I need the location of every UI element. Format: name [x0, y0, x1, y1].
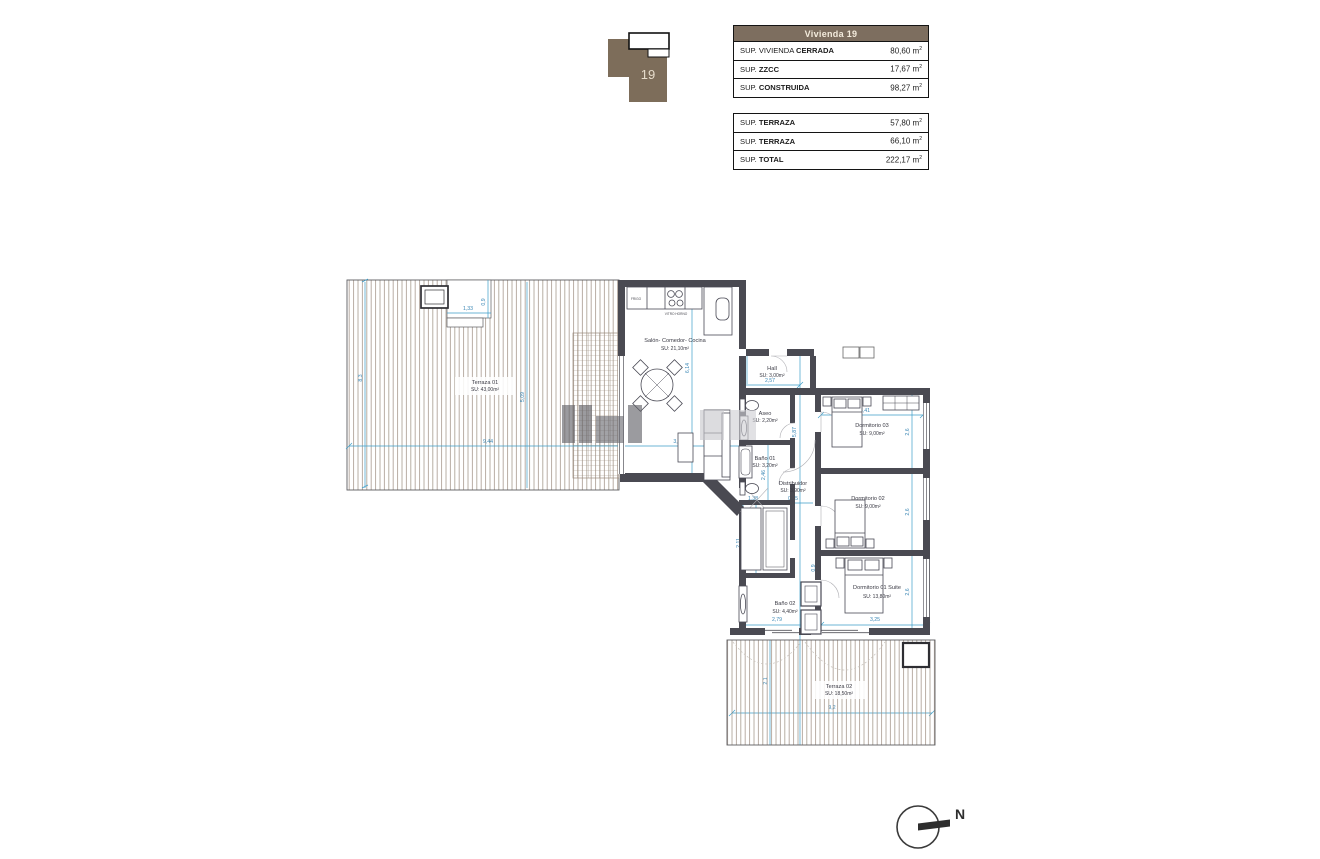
- key-plan-shape: 19: [608, 33, 669, 102]
- key-plan-block-left: [608, 39, 631, 77]
- dim-text: 2,6: [905, 508, 911, 515]
- wall: [787, 349, 814, 356]
- table-row: SUP. ZZCC 17,67 m2: [734, 60, 928, 79]
- watermark-blocks: [562, 405, 756, 443]
- table-row: SUP. TERRAZA 66,10 m2: [734, 132, 928, 151]
- kitchen-label-fridge: FRIGO: [631, 297, 642, 301]
- row-label: SUP. TERRAZA: [740, 118, 795, 127]
- closet: [741, 508, 761, 570]
- terrace-01-notch-step: [447, 318, 483, 327]
- room-label-dorm02-area: SU: 9,00m²: [855, 504, 881, 510]
- wall: [739, 500, 795, 505]
- chair: [667, 360, 683, 376]
- pillow: [851, 537, 863, 546]
- row-value: 66,10 m2: [890, 136, 922, 146]
- hob-burner-icon: [669, 300, 675, 306]
- nightstand: [823, 397, 831, 406]
- kitchen-label-hob: VITRO HORNO: [665, 312, 688, 316]
- nightstand: [836, 558, 844, 568]
- room-label-salon-name: Salón- Comedor- Cocina: [644, 338, 706, 344]
- pillow: [837, 537, 849, 546]
- wall: [746, 349, 769, 356]
- row-value: 80,60 m2: [890, 46, 922, 56]
- floorplan-sheet: 19 Vivienda 19 SUP. VIVIENDA CERRADA 80,…: [0, 0, 1320, 859]
- wall: [821, 550, 930, 556]
- step: [860, 347, 874, 358]
- shower-inner: [805, 586, 817, 602]
- room-label-salon-area: SU: 21,10m²: [661, 346, 689, 352]
- table-row: SUP. CONSTRUIDA 98,27 m2: [734, 78, 928, 97]
- room-label-terraza01-area: SU: 43,00m²: [471, 387, 499, 393]
- table-row: SUP. TERRAZA 57,80 m2: [734, 114, 928, 132]
- room-label-hall-area: SU: 3,00m²: [759, 373, 785, 379]
- wall: [739, 573, 795, 578]
- room-label-dorm03-name: Dormitorio 03: [855, 423, 889, 429]
- dim-text: 1,33: [463, 306, 473, 312]
- wall: [790, 445, 795, 468]
- terrace-01: Terraza 01 SU: 43,00m²: [347, 280, 619, 490]
- wall: [790, 505, 795, 540]
- north-label: N: [955, 806, 965, 822]
- wall: [790, 395, 795, 423]
- wall: [810, 356, 816, 388]
- row-value: 222,17 m2: [886, 155, 922, 165]
- dim-text: 0,9: [481, 298, 487, 305]
- watermark: [558, 402, 768, 448]
- wall: [739, 388, 930, 395]
- nightstand: [866, 539, 874, 548]
- north-arrow-pointer: [918, 820, 950, 831]
- key-plan-highlight-box: [629, 33, 669, 49]
- row-value: 57,80 m2: [890, 118, 922, 128]
- pillow: [834, 399, 846, 408]
- room-label-dorm03-area: SU: 9,00m²: [859, 431, 885, 437]
- dim-text: 8,3: [358, 374, 364, 381]
- room-label-bano01-area: SU: 3,20m²: [752, 463, 778, 469]
- laundry-fixture: [716, 298, 729, 320]
- room-label-terraza02-name: Terraza 02: [826, 684, 852, 690]
- row-label: SUP. VIVIENDA CERRADA: [740, 46, 834, 55]
- summary-table-built: Vivienda 19 SUP. VIVIENDA CERRADA 80,60 …: [733, 25, 929, 98]
- sink-icon: [668, 291, 675, 298]
- nightstand: [826, 539, 834, 548]
- room-label-terraza01-name: Terraza 01: [472, 380, 498, 386]
- dim-text: 2,6: [905, 428, 911, 435]
- row-label: SUP. TERRAZA: [740, 137, 795, 146]
- dim-text: 3,25: [870, 617, 880, 623]
- pillow: [848, 560, 862, 570]
- wall: [815, 526, 821, 580]
- dim-text: 2,79: [772, 617, 782, 623]
- toilet-icon: [746, 484, 759, 494]
- nightstand: [863, 397, 871, 406]
- dim-text: 5,87: [792, 427, 798, 437]
- nightstand: [884, 558, 892, 568]
- summary-table-terraces: SUP. TERRAZA 57,80 m2 SUP. TERRAZA 66,10…: [733, 113, 929, 170]
- room-label-distribuidor-name: Distribuidor: [779, 481, 807, 487]
- dim-text: 6,14: [685, 363, 691, 373]
- wall: [790, 558, 795, 578]
- room-label-dorm01-name: Dormitorio 01 Suite: [853, 585, 901, 591]
- wall: [790, 438, 795, 445]
- room-label-hall-name: Hall: [767, 366, 777, 372]
- dim-text: 5,09: [520, 392, 526, 402]
- kitchen: FRIGO VITRO HORNO: [627, 287, 732, 335]
- terrace-02: Terraza 02 SU: 18,50m²: [727, 640, 935, 745]
- toilet-tank: [740, 482, 745, 495]
- sink-icon: [676, 291, 683, 298]
- room-label-bano02-area: SU: 4,40m²: [772, 609, 798, 615]
- wall: [618, 280, 625, 356]
- key-plan-unit-number: 19: [641, 67, 655, 82]
- planter-box: [903, 643, 929, 667]
- table-row: SUP. TOTAL 222,17 m2: [734, 150, 928, 169]
- bathtub-inner: [741, 449, 750, 475]
- dim-text: 2,6: [905, 588, 911, 595]
- room-label-dorm01-area: SU: 13,80m²: [863, 594, 891, 600]
- row-label: SUP. CONSTRUIDA: [740, 83, 809, 92]
- sliding-door-terrace2-left: [765, 628, 799, 635]
- row-label: SUP. TOTAL: [740, 155, 783, 164]
- table-row: SUP. VIVIENDA CERRADA 80,60 m2: [734, 42, 928, 60]
- room-label-dorm02-name: Dormitorio 02: [851, 496, 885, 502]
- dim-text: 2,46: [761, 470, 767, 480]
- table-header: Vivienda 19: [734, 26, 928, 42]
- wall: [815, 395, 821, 412]
- floor-plan-drawing: Terraza 01 SU: 43,00m²: [335, 260, 955, 760]
- key-plan-highlight-box-small: [648, 49, 669, 57]
- closet-inner: [766, 511, 784, 567]
- step: [843, 347, 859, 358]
- north-arrow: N: [888, 795, 973, 857]
- wall: [620, 473, 710, 482]
- pillow: [848, 399, 860, 408]
- wall: [821, 468, 930, 474]
- wall: [815, 432, 821, 506]
- dim-text: 9,44: [483, 439, 493, 445]
- pillow: [865, 560, 879, 570]
- row-label: SUP. ZZCC: [740, 65, 779, 74]
- hob-burner-icon: [677, 300, 683, 306]
- wall: [618, 280, 746, 287]
- room-label-bano02-name: Baño 02: [775, 601, 796, 607]
- row-value: 17,67 m2: [890, 64, 922, 74]
- wall: [739, 280, 746, 349]
- key-plan: 19: [598, 28, 708, 123]
- room-label-terraza02-area: SU: 18,50m²: [825, 691, 853, 697]
- row-value: 98,27 m2: [890, 83, 922, 93]
- shower-inner: [805, 614, 817, 630]
- room-label-bano01-name: Baño 01: [755, 456, 776, 462]
- door-swing: [821, 580, 839, 598]
- entrance-steps: [843, 347, 874, 358]
- room-label-distribuidor-area: SU: 3,90m²: [780, 488, 806, 494]
- washbasin-bowl: [740, 594, 745, 614]
